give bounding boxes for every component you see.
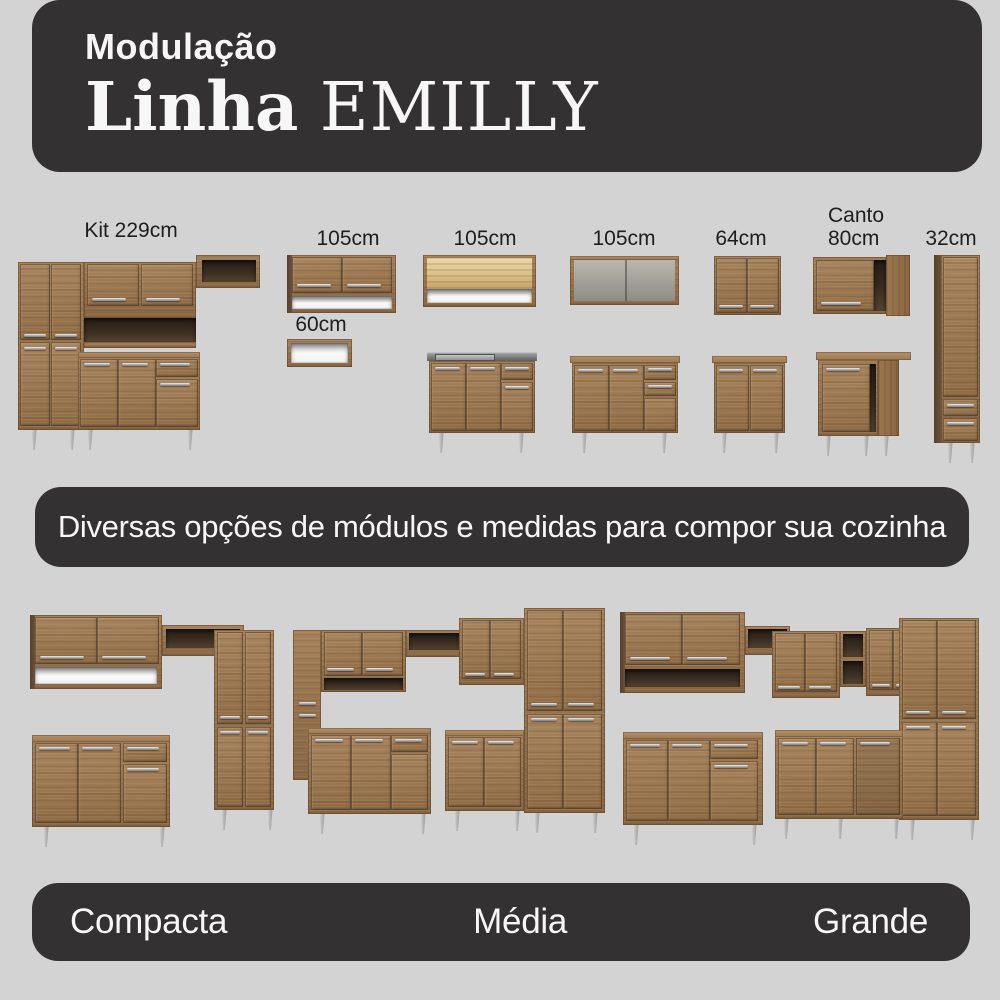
cabinet-leg xyxy=(453,811,461,831)
tall-cabinet xyxy=(18,262,84,430)
drawer-handle xyxy=(648,368,672,371)
niche-60-illustration xyxy=(287,339,352,367)
door-handle xyxy=(465,673,485,676)
door-handle xyxy=(92,298,126,301)
base-cabinet xyxy=(572,363,678,433)
size-label-grande: Grande xyxy=(813,902,928,942)
door-handle xyxy=(531,703,557,706)
door-handle xyxy=(494,673,514,676)
door xyxy=(51,264,81,340)
door-handle xyxy=(578,369,603,372)
door xyxy=(563,610,602,711)
cabinet-leg xyxy=(908,820,916,840)
cabinet-leg xyxy=(750,825,758,845)
door xyxy=(574,365,609,431)
open-shelf xyxy=(292,296,392,309)
door xyxy=(448,737,484,807)
door xyxy=(805,633,837,692)
base-cabinet xyxy=(623,732,763,825)
cabinet-leg xyxy=(591,813,599,833)
title-brand-name: EMILLY xyxy=(320,68,599,146)
base-cabinet xyxy=(445,730,524,811)
drawer-handle xyxy=(395,739,422,742)
door-handle xyxy=(821,302,861,305)
cabinet-leg xyxy=(836,819,844,839)
wall-cabinet xyxy=(84,262,196,318)
door-handle xyxy=(55,347,77,350)
door-handle xyxy=(568,718,594,721)
base-cabinet xyxy=(818,360,878,436)
base-cabinet xyxy=(32,735,170,827)
door xyxy=(462,620,490,679)
kitchen-compacta-illustration xyxy=(28,612,275,852)
door-handle xyxy=(24,347,46,350)
module-label-wall105-b: 105cm xyxy=(453,227,516,251)
tagline-banner: Diversas opções de módulos e medidas par… xyxy=(35,487,969,567)
door-handle xyxy=(299,714,316,717)
cabinet-leg xyxy=(720,433,728,453)
countertop xyxy=(32,735,170,742)
cabinet-leg xyxy=(632,825,640,845)
door-handle xyxy=(505,386,529,389)
door-handle xyxy=(127,768,159,771)
door-handle xyxy=(299,702,316,705)
door xyxy=(902,722,937,816)
door-handle xyxy=(942,711,966,714)
door-handle xyxy=(942,726,966,729)
kitchen-media-illustration xyxy=(293,600,605,845)
door xyxy=(78,743,121,823)
countertop xyxy=(570,356,680,363)
module-label-canto80-line2: 80cm xyxy=(828,227,879,251)
door xyxy=(563,714,602,809)
door-handle xyxy=(122,363,148,366)
product-infographic: Modulação Linha EMILLY Kit 229cm 105cm 6… xyxy=(0,0,1000,1000)
cabinet-leg xyxy=(580,433,588,453)
door-handle xyxy=(906,726,930,729)
door-handle xyxy=(630,657,670,660)
door-handle xyxy=(84,363,110,366)
tagline-text: Diversas opções de módulos e medidas par… xyxy=(58,509,946,545)
cabinet-leg xyxy=(660,433,668,453)
door xyxy=(816,738,854,815)
header-banner: Modulação Linha EMILLY xyxy=(32,0,982,172)
door-handle xyxy=(488,741,514,744)
door-handle xyxy=(672,744,702,747)
door xyxy=(937,722,976,816)
shelf-board xyxy=(84,342,196,348)
door xyxy=(20,342,50,426)
corner-base-cabinet xyxy=(775,730,903,819)
cabinet-leg xyxy=(882,436,890,456)
cabinet-leg xyxy=(968,443,976,463)
tall-cabinet xyxy=(214,630,274,810)
header-kicker: Modulação xyxy=(85,26,982,68)
door-handle xyxy=(55,334,77,337)
module-label-niche60: 60cm xyxy=(295,313,346,337)
cabinet-leg xyxy=(68,430,76,450)
door-handle xyxy=(613,369,638,372)
door xyxy=(626,740,668,821)
open-shelf xyxy=(35,667,157,684)
top-open-shelf xyxy=(196,255,260,288)
cabinet-leg xyxy=(30,430,38,450)
countertop xyxy=(712,356,787,363)
door-handle xyxy=(860,742,890,745)
cabinet-leg xyxy=(862,436,870,456)
door xyxy=(902,620,937,719)
door-handle xyxy=(826,368,860,371)
door-handle xyxy=(906,711,930,714)
door xyxy=(527,610,563,711)
door xyxy=(35,743,78,823)
door-handle xyxy=(470,367,495,370)
cabinet-leg xyxy=(824,436,832,456)
door xyxy=(217,632,243,724)
door xyxy=(245,727,271,807)
bridge-shelf xyxy=(406,630,463,657)
wall-64-illustration xyxy=(714,256,781,315)
door xyxy=(292,257,342,293)
door-handle xyxy=(220,716,240,719)
door-handle xyxy=(687,657,727,660)
corner-recess xyxy=(870,364,876,432)
base-cabinet xyxy=(308,728,431,814)
door xyxy=(869,630,893,690)
door-handle xyxy=(568,703,594,706)
kitchen-grande-illustration xyxy=(620,608,990,855)
corner-return-panel xyxy=(886,255,910,316)
module-label-wall64: 64cm xyxy=(715,227,766,251)
door xyxy=(937,620,976,719)
tall-32-illustration xyxy=(934,255,980,461)
cabinet-leg xyxy=(533,813,541,833)
kit229-illustration xyxy=(18,255,260,455)
door xyxy=(750,365,783,431)
door-handle xyxy=(782,742,808,745)
door-handle xyxy=(146,298,180,301)
drawer-handle xyxy=(505,367,529,370)
page-title: Linha EMILLY xyxy=(85,72,982,142)
door-handle xyxy=(452,741,478,744)
wall-105-wood-door-illustration xyxy=(423,255,536,307)
door xyxy=(245,632,271,724)
module-label-tall32: 32cm xyxy=(925,227,976,251)
size-label-compacta: Compacta xyxy=(70,902,227,942)
cabinet-leg xyxy=(318,814,326,834)
door-handle xyxy=(531,718,557,721)
open-shelf xyxy=(202,260,256,282)
door xyxy=(466,363,501,431)
cubby-shelves xyxy=(840,631,866,687)
wall-cabinet xyxy=(620,612,745,693)
door xyxy=(311,735,351,810)
cabinet-leg xyxy=(266,810,274,830)
wall-cabinet xyxy=(813,257,886,314)
drawer xyxy=(710,740,758,759)
door-handle xyxy=(872,684,890,687)
door xyxy=(342,257,392,293)
door xyxy=(527,714,563,809)
cabinet-leg xyxy=(42,827,50,847)
cabinet-leg xyxy=(419,814,427,834)
door-handle xyxy=(947,422,974,425)
door-handle xyxy=(297,284,331,287)
module-label-wall105-c: 105cm xyxy=(592,227,655,251)
corner-return-panel xyxy=(878,360,899,436)
pantry-cabinet xyxy=(524,608,605,813)
drawer-handle xyxy=(160,363,190,366)
open-shelf xyxy=(84,318,196,342)
door xyxy=(778,738,816,815)
door-handle xyxy=(315,739,343,742)
open-shelf xyxy=(843,661,863,684)
open-shelf xyxy=(291,343,348,363)
sink-basin xyxy=(435,354,495,361)
open-shelf xyxy=(324,678,403,690)
corner-wall-80-illustration xyxy=(813,255,910,316)
base-64-illustration xyxy=(712,356,787,456)
countertop xyxy=(445,730,524,736)
drawer xyxy=(501,363,533,380)
base-cabinet xyxy=(78,352,200,430)
countertop xyxy=(775,730,903,737)
door-handle xyxy=(248,716,268,719)
door-handle xyxy=(220,731,240,734)
corner-base-80-illustration xyxy=(816,352,911,456)
corner-recess xyxy=(874,260,886,311)
open-shelf xyxy=(843,634,863,657)
cabinet-leg xyxy=(186,430,194,450)
open-shelf xyxy=(625,669,740,687)
door xyxy=(351,735,391,810)
drawer-handle xyxy=(714,744,748,747)
door-handle xyxy=(753,369,777,372)
door xyxy=(156,379,198,427)
drawer-handle xyxy=(947,404,974,407)
drawer xyxy=(156,359,198,377)
door xyxy=(716,365,749,431)
wall-105-sliding-illustration xyxy=(570,256,679,305)
door xyxy=(775,633,805,692)
sizes-banner: Compacta Média Grande xyxy=(32,883,970,961)
cabinet-leg xyxy=(158,827,166,847)
door-handle xyxy=(435,367,460,370)
door-handle xyxy=(719,305,743,308)
drawer-handle xyxy=(648,385,672,388)
door xyxy=(51,342,81,426)
door-handle xyxy=(102,656,146,659)
door-handle xyxy=(630,744,660,747)
drawer xyxy=(391,735,428,752)
door-handle xyxy=(714,765,748,768)
door xyxy=(118,359,156,427)
wall-cabinet-105-illustration xyxy=(287,255,396,313)
door xyxy=(668,740,710,821)
base-cabinet xyxy=(714,363,785,433)
door xyxy=(609,365,644,431)
door xyxy=(856,738,900,815)
door-handle xyxy=(24,334,46,337)
cabinet-leg xyxy=(517,433,525,453)
door xyxy=(431,363,466,431)
pantry-cabinet xyxy=(899,618,979,820)
open-shelf xyxy=(409,633,460,650)
door-handle xyxy=(820,742,846,745)
door-handle xyxy=(82,747,113,750)
countertop xyxy=(308,728,431,734)
door-handle xyxy=(355,739,383,742)
door xyxy=(943,257,978,397)
wall-cabinet xyxy=(30,615,162,689)
sliding-door xyxy=(427,258,532,289)
cabinet-leg xyxy=(772,433,780,453)
base-105-illustration xyxy=(570,356,680,456)
title-line-name: Linha xyxy=(85,67,298,146)
open-gap xyxy=(427,289,532,303)
door xyxy=(822,364,870,432)
base-cabinet xyxy=(429,361,535,433)
cabinet-leg xyxy=(782,819,790,839)
door xyxy=(123,764,167,823)
door-handle xyxy=(809,686,831,689)
drawer-handle xyxy=(127,747,159,750)
side-panel xyxy=(934,255,941,443)
size-label-media: Média xyxy=(473,902,567,942)
door xyxy=(490,620,521,679)
door xyxy=(217,727,243,807)
door-handle xyxy=(347,284,381,287)
cabinet-leg xyxy=(220,810,228,830)
drawer xyxy=(123,743,167,762)
door-handle xyxy=(327,668,354,671)
countertop xyxy=(623,732,763,739)
module-label-canto80-line1: Canto xyxy=(828,204,884,228)
door-handle xyxy=(750,305,774,308)
door-handle xyxy=(160,383,190,386)
wall-cabinet xyxy=(772,631,840,698)
door xyxy=(710,761,758,821)
door xyxy=(501,382,533,431)
door-divider xyxy=(625,260,627,301)
door xyxy=(20,264,50,340)
door-handle xyxy=(366,668,393,671)
door-handle xyxy=(39,747,70,750)
wall-cabinet xyxy=(321,630,406,692)
cabinet-leg xyxy=(946,443,954,463)
countertop xyxy=(78,352,200,358)
sink-base-105-illustration xyxy=(427,352,537,456)
module-label-kit229: Kit 229cm xyxy=(84,219,177,243)
door-handle xyxy=(40,656,84,659)
cabinet-leg xyxy=(86,430,94,450)
cabinet-leg xyxy=(437,433,445,453)
tall-cabinet xyxy=(941,255,980,443)
door xyxy=(80,359,118,427)
door-handle xyxy=(248,731,268,734)
drawer xyxy=(943,399,978,416)
cabinet-leg xyxy=(513,811,521,831)
door-handle xyxy=(719,369,743,372)
door-handle xyxy=(778,686,800,689)
cabinet-leg xyxy=(892,819,900,839)
door xyxy=(644,398,676,431)
door xyxy=(391,754,428,810)
cabinet-leg xyxy=(968,820,976,840)
wall-cabinet xyxy=(459,618,524,685)
door xyxy=(484,737,521,807)
module-label-wall105-a: 105cm xyxy=(316,227,379,251)
countertop xyxy=(816,352,911,360)
